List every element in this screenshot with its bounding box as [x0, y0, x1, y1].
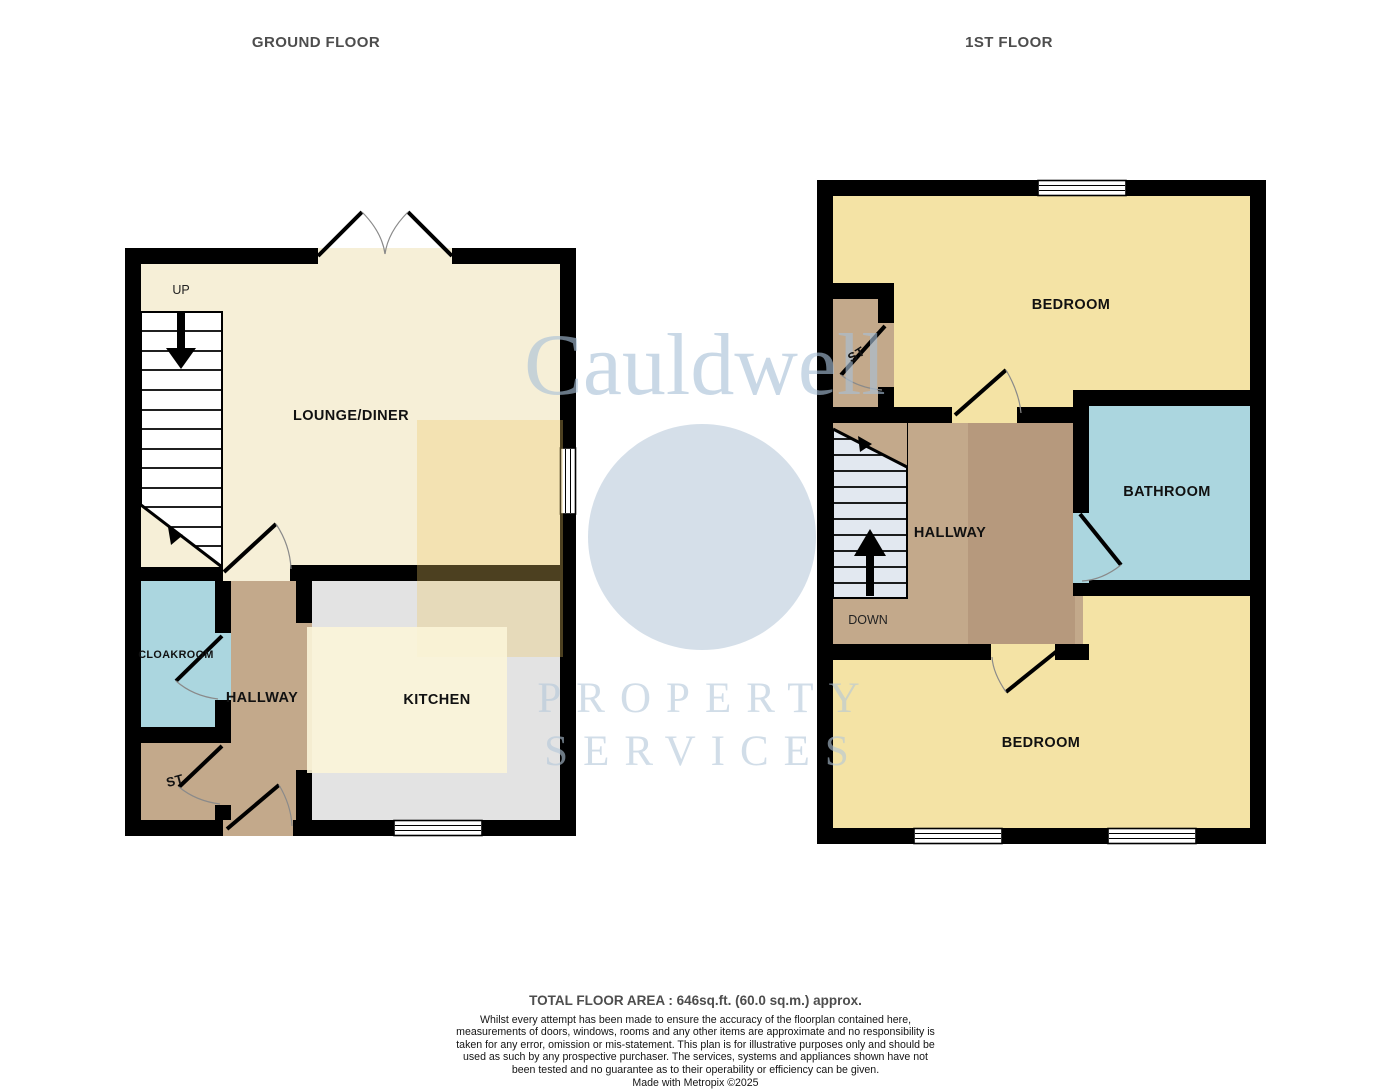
disclaimer-text: Whilst every attempt has been made to en… [455, 1014, 937, 1076]
watermark-property-text: PROPERTY [537, 675, 874, 722]
cloakroom-label: CLOAKROOM [138, 649, 214, 661]
watermark-square [417, 420, 563, 657]
bedroom2-window-right [1108, 829, 1196, 844]
bedroom2-window-left [914, 829, 1002, 844]
ground-hallway-label: HALLWAY [226, 690, 298, 706]
down-label: DOWN [848, 613, 888, 627]
bedroom2-label: BEDROOM [1002, 735, 1081, 751]
ground-stairs [141, 312, 222, 567]
lounge-label: LOUNGE/DINER [293, 408, 409, 424]
floorplan-page: { "titles": { "ground": "GROUND FLOOR", … [0, 0, 1391, 1080]
bathroom-label: BATHROOM [1123, 484, 1211, 500]
total-floor-area: TOTAL FLOOR AREA : 646sq.ft. (60.0 sq.m.… [416, 993, 976, 1008]
up-label: UP [172, 283, 189, 297]
floorplan-canvas: Cauldwell PROPERTY SERVICES LOUNGE/DINER… [0, 0, 1391, 1080]
watermark-services-text: SERVICES [544, 728, 864, 775]
metropix-credit: Made with Metropix ©2025 [416, 1077, 976, 1089]
first-stairs [833, 423, 907, 598]
watermark-brand-text: Cauldwell [524, 317, 886, 414]
bedroom1-window [1038, 181, 1126, 196]
first-hallway-label: HALLWAY [914, 525, 986, 541]
bedroom1-label: BEDROOM [1032, 297, 1111, 313]
footer: TOTAL FLOOR AREA : 646sq.ft. (60.0 sq.m.… [416, 993, 976, 1089]
watermark-blob [588, 424, 816, 650]
kitchen-label: KITCHEN [403, 692, 470, 708]
kitchen-window [394, 821, 482, 836]
